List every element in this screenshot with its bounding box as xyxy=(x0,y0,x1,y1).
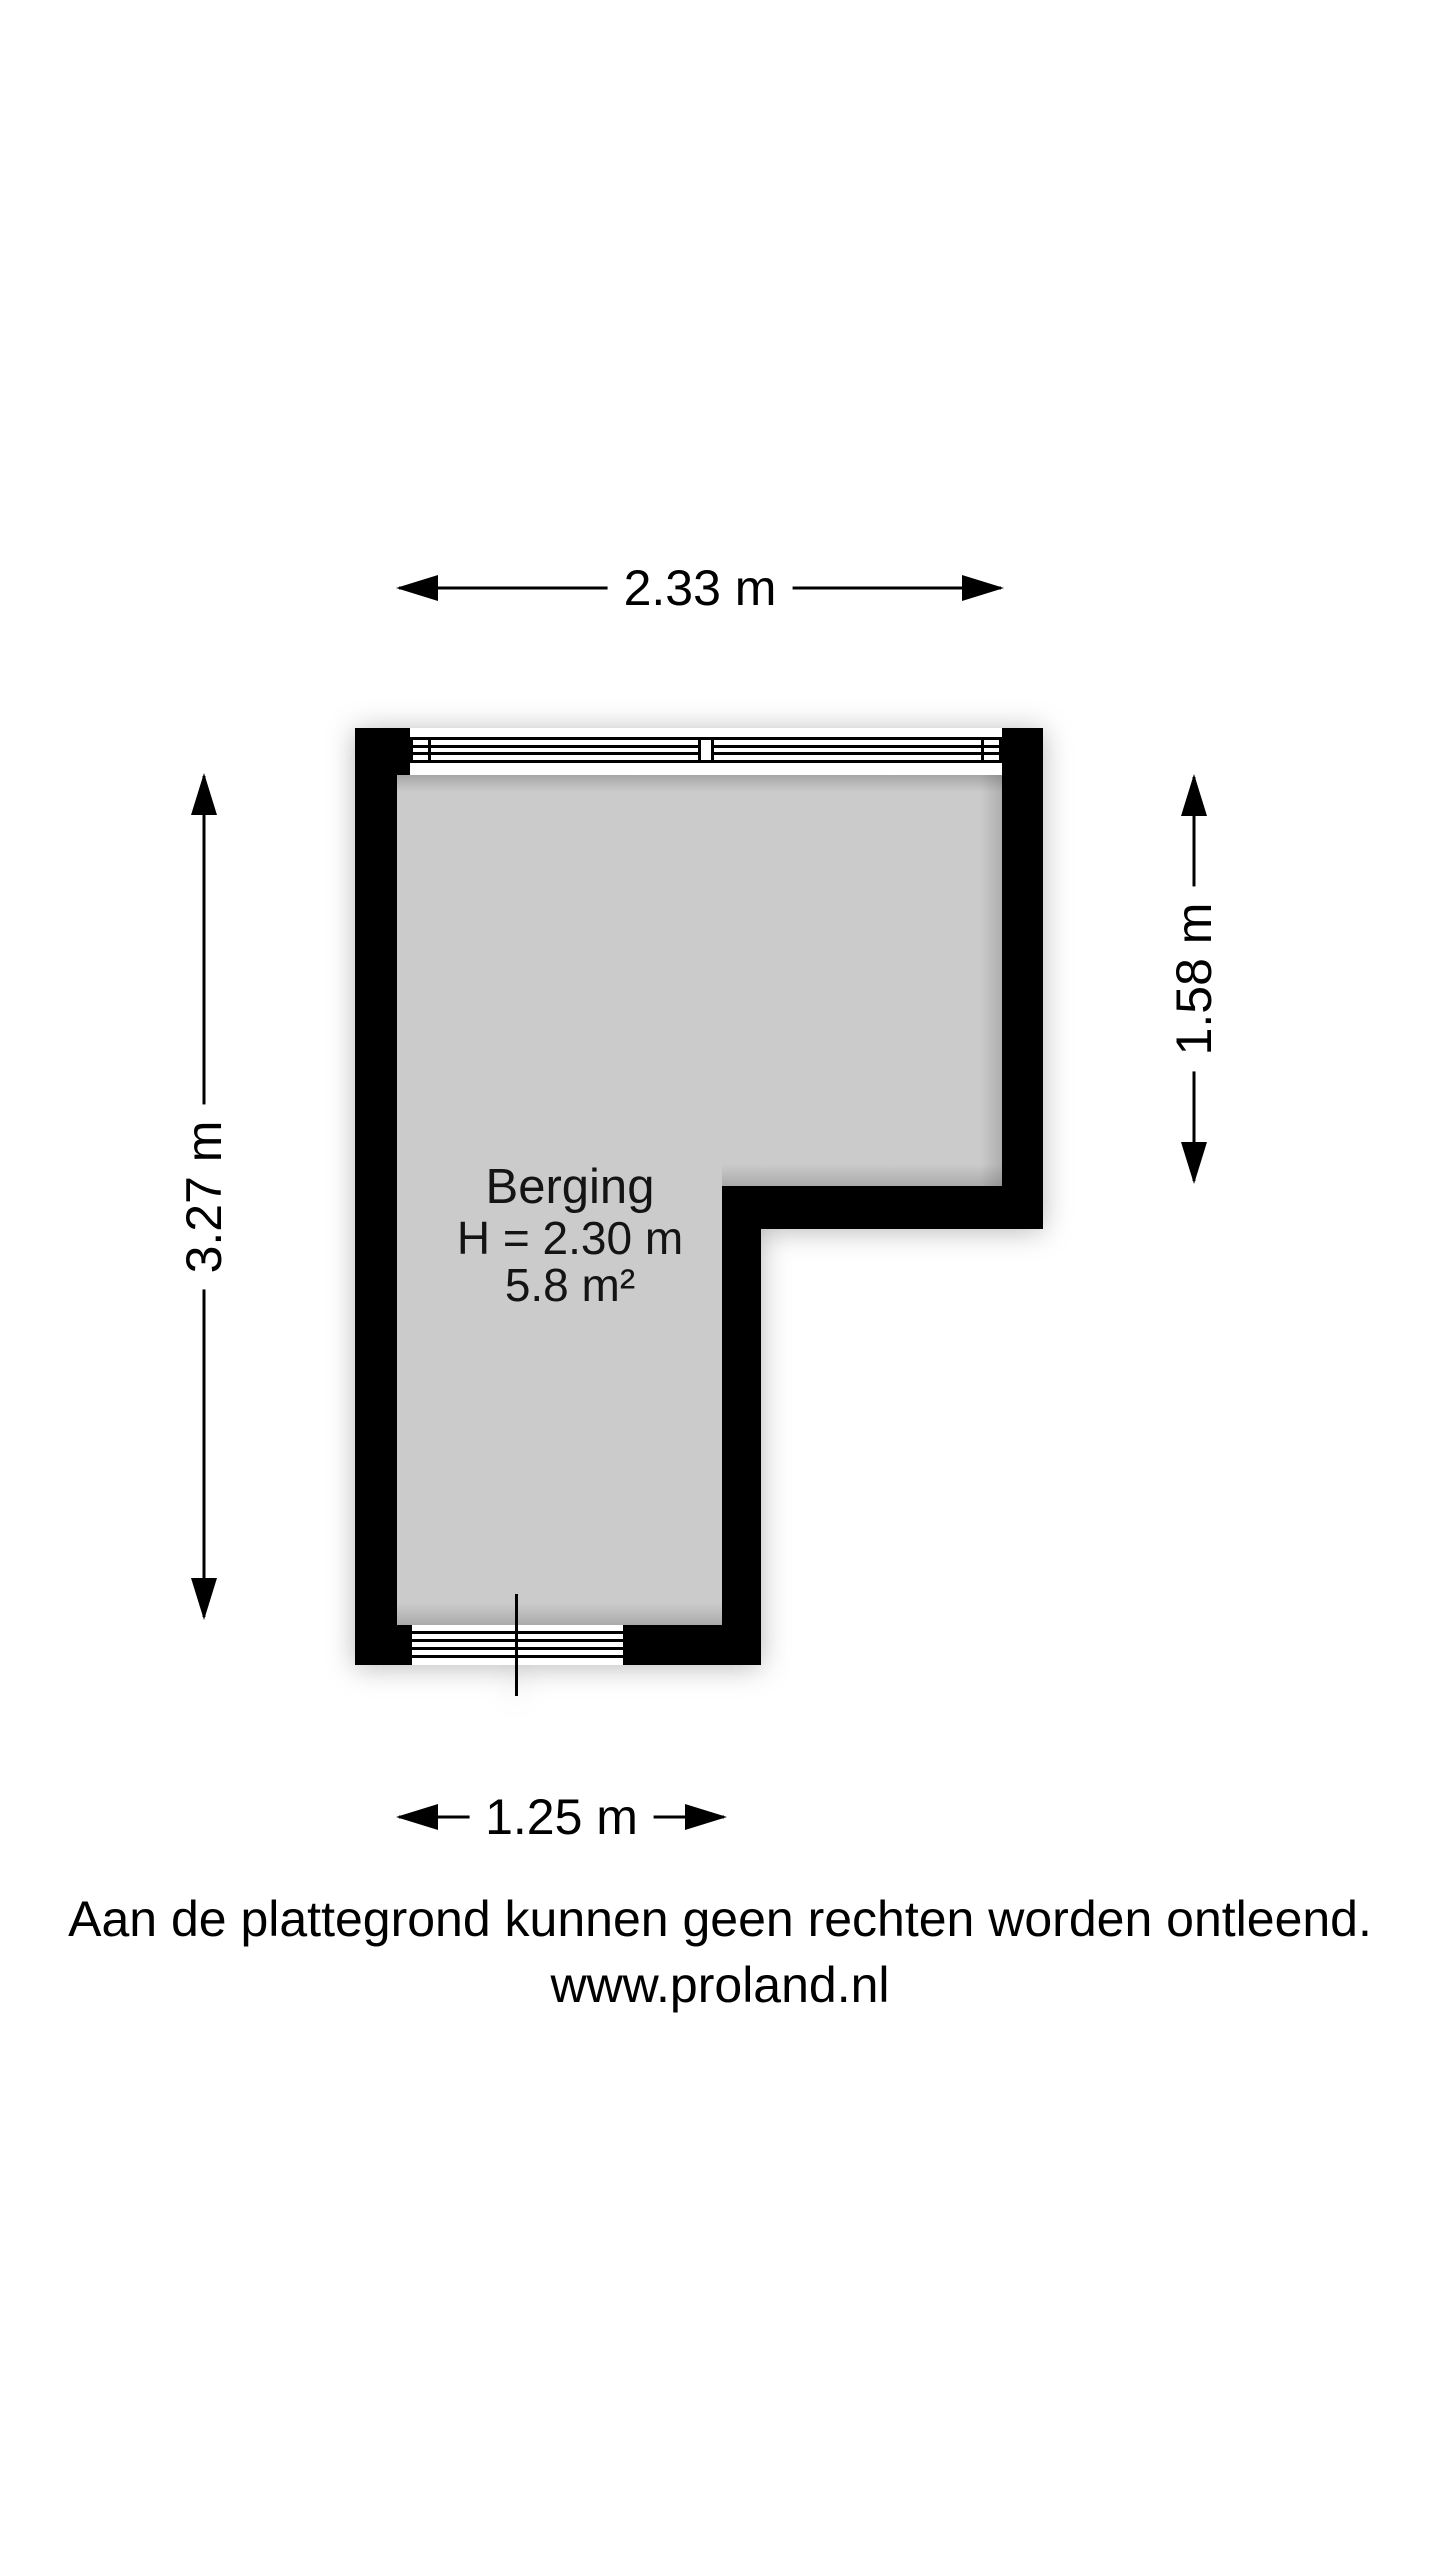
room-ceiling-height: H = 2.30 m xyxy=(370,1215,770,1262)
arrow-left-icon xyxy=(396,1804,438,1830)
arrow-up-icon xyxy=(1181,774,1207,816)
floor-plan-page: Berging H = 2.30 m 5.8 m² 2.33 m 3.27 m … xyxy=(0,0,1440,2560)
footer: Aan de plattegrond kunnen geen rechten w… xyxy=(0,1886,1440,2018)
dimension-right-label: 1.58 m xyxy=(1165,887,1223,1072)
window-top-wall xyxy=(410,728,1002,775)
window-jamb-left xyxy=(428,740,431,760)
door-axis-line xyxy=(515,1594,518,1696)
wall-bottom-left xyxy=(355,1625,412,1665)
dimension-top-label: 2.33 m xyxy=(608,559,793,617)
arrow-right-icon xyxy=(685,1804,727,1830)
dimension-top: 2.33 m xyxy=(396,562,1004,614)
dimension-left: 3.27 m xyxy=(178,773,230,1620)
window-glass xyxy=(410,737,1002,763)
dimension-bottom: 1.25 m xyxy=(396,1791,727,1843)
arrow-down-icon xyxy=(1181,1142,1207,1184)
wall-right xyxy=(1002,728,1043,1229)
footer-website: www.proland.nl xyxy=(0,1952,1440,2018)
room-label: Berging H = 2.30 m 5.8 m² xyxy=(370,1160,770,1309)
dimension-left-label: 3.27 m xyxy=(175,1104,233,1289)
window-mullion xyxy=(698,740,714,760)
wall-corner-top-left xyxy=(355,728,412,775)
wall-bottom-right xyxy=(623,1625,761,1665)
arrow-right-icon xyxy=(962,575,1004,601)
arrow-left-icon xyxy=(396,575,438,601)
wall-notch-horizontal xyxy=(722,1186,1043,1229)
dimension-bottom-label: 1.25 m xyxy=(469,1788,654,1846)
room-area: 5.8 m² xyxy=(370,1262,770,1309)
arrow-up-icon xyxy=(191,773,217,815)
room-name: Berging xyxy=(370,1160,770,1215)
arrow-down-icon xyxy=(191,1578,217,1620)
dimension-right: 1.58 m xyxy=(1168,774,1220,1184)
window-jamb-right xyxy=(981,740,984,760)
footer-disclaimer: Aan de plattegrond kunnen geen rechten w… xyxy=(0,1886,1440,1952)
